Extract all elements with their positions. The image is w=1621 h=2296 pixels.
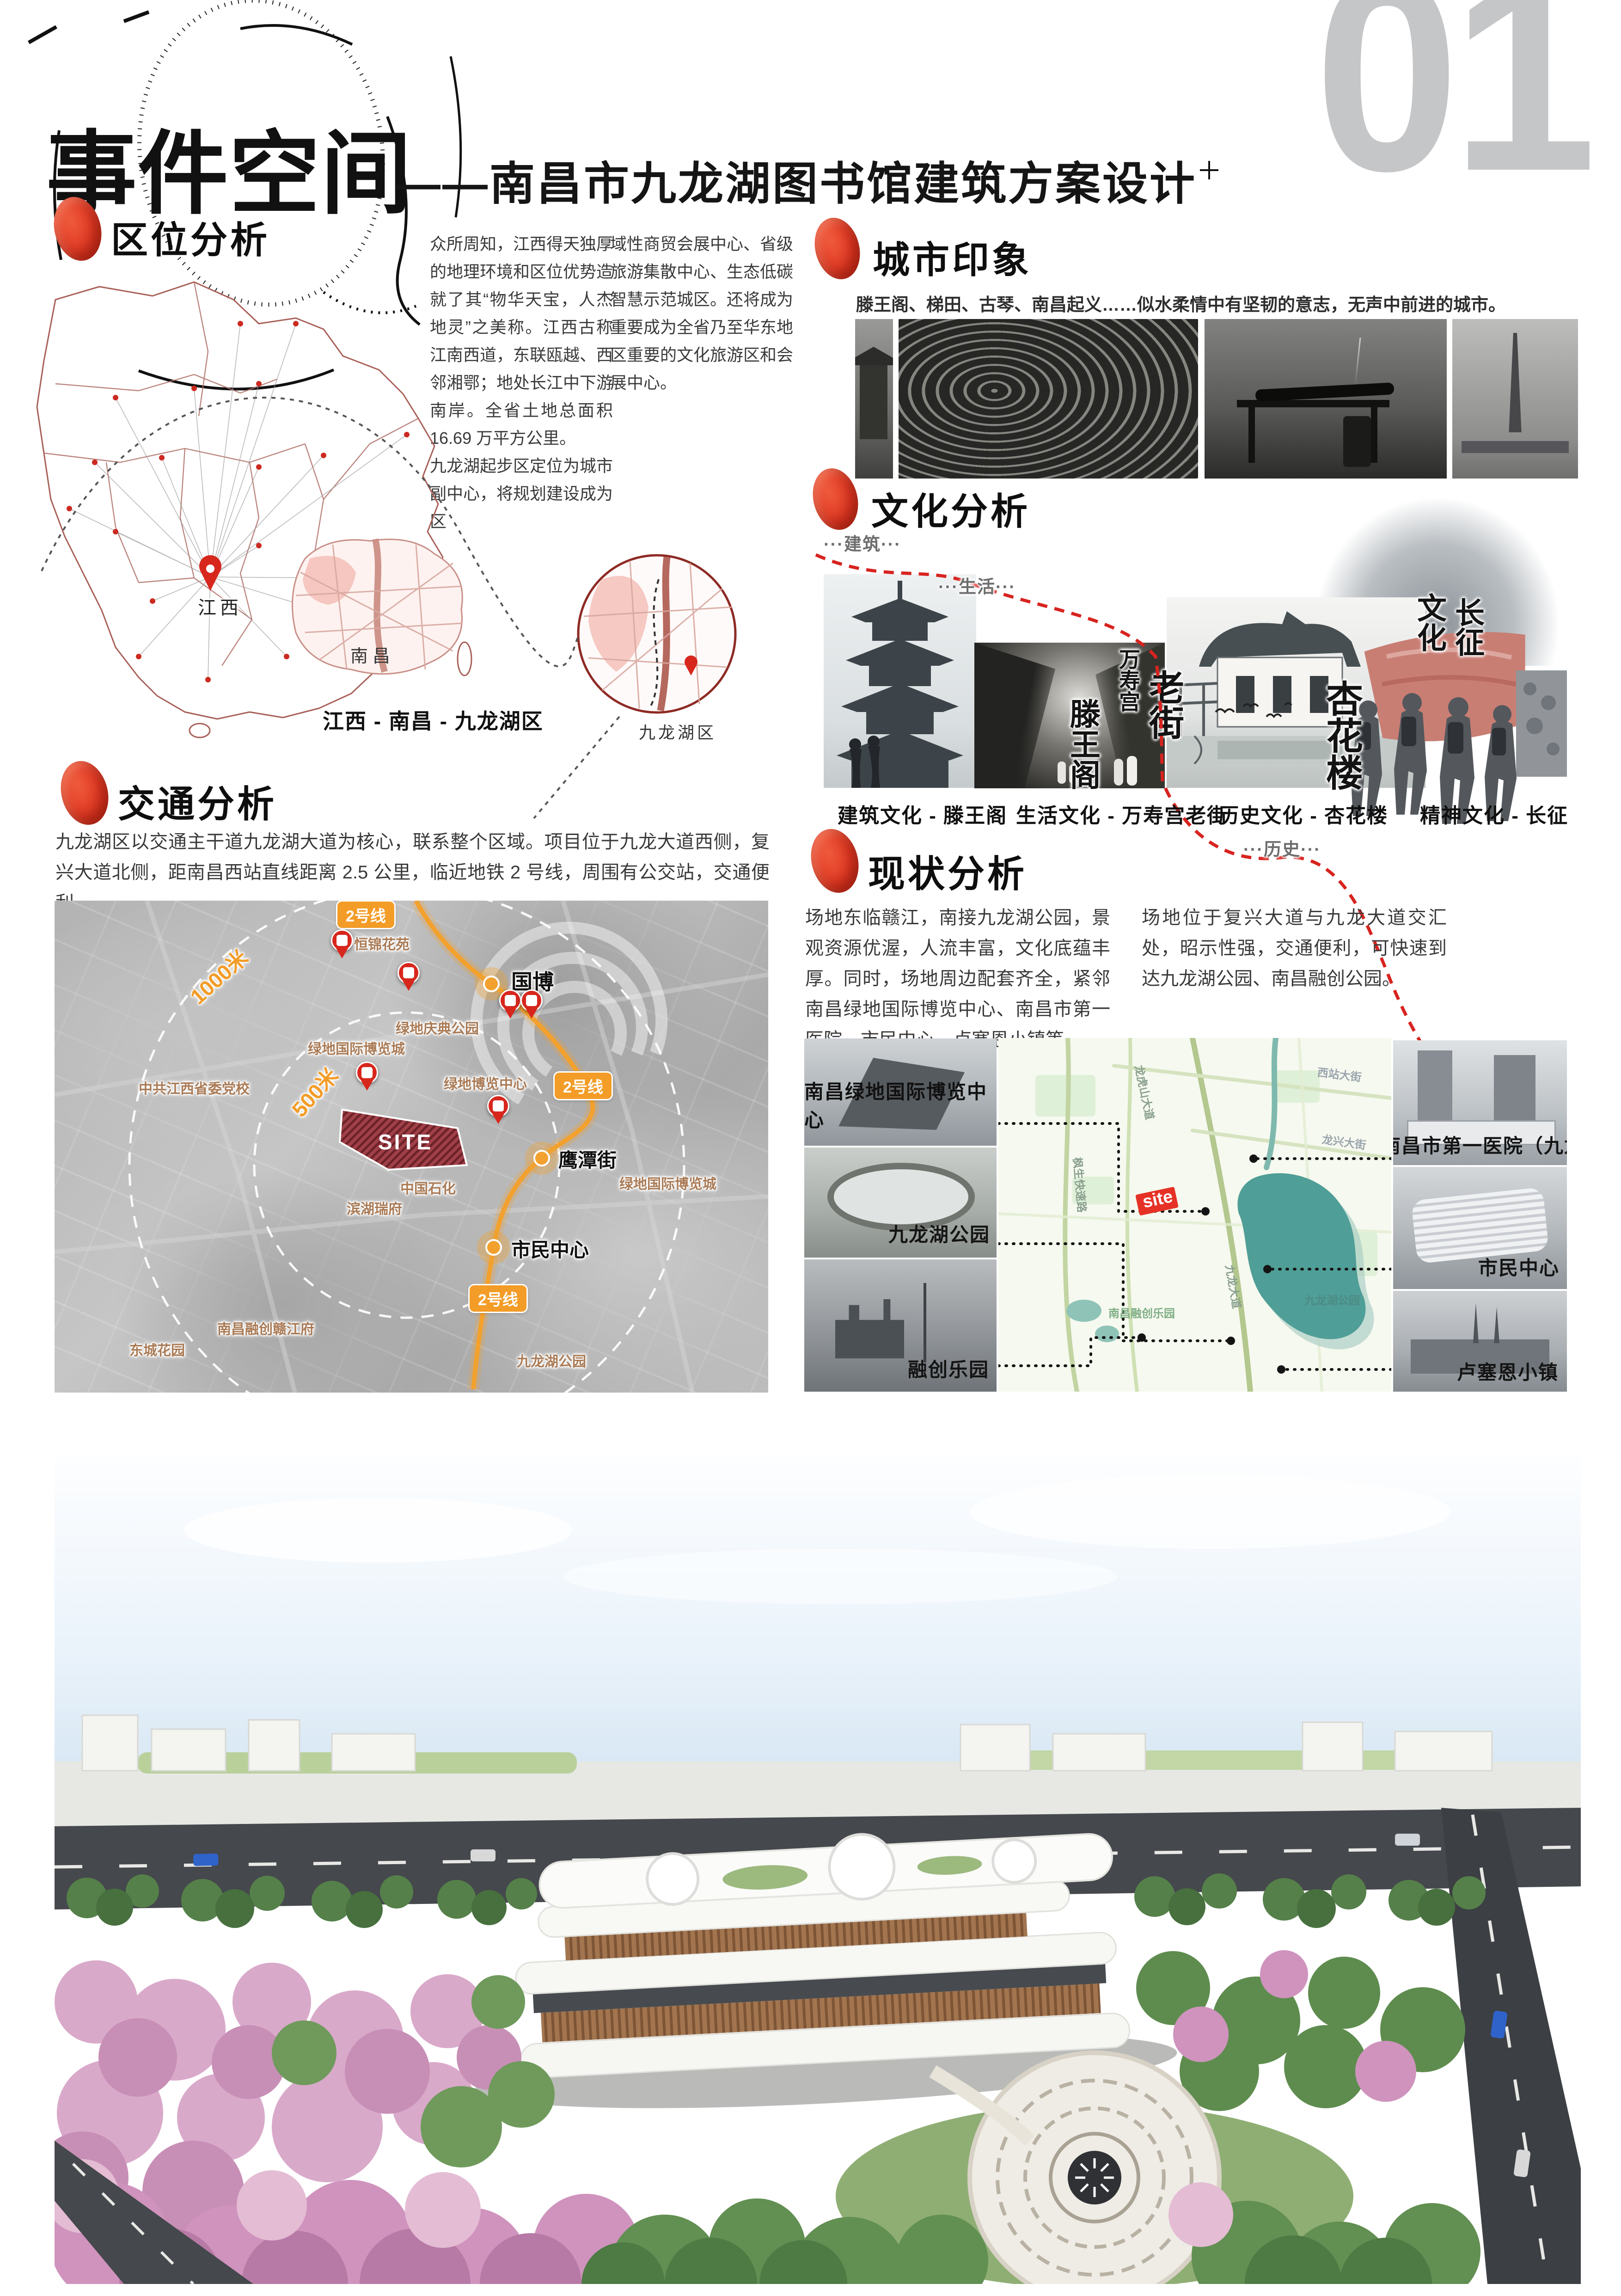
incense-smoke-icon [1355,338,1361,386]
status-photo-caption: 融创乐园 [908,1354,989,1382]
poi-party-school: 中共江西省委党校 [139,1077,250,1098]
bus-stop-pin-icon [499,989,521,1012]
station-label-yingtanjie: 鹰潭街 [558,1145,617,1173]
flow-label-history: ···历史··· [1243,835,1321,860]
impression-photo-monument [1452,319,1578,479]
hospital-tower-icon [1494,1055,1535,1125]
table-leg-icon [1371,407,1377,463]
metro-line2-badge: 2号线 [337,902,394,928]
status-photo-caption: 卢塞恩小镇 [1457,1357,1559,1385]
poi-jiulonghu-park: 九龙湖公园 [517,1350,586,1370]
station-label-shimin: 市民中心 [511,1234,589,1263]
poi-sinopec: 中国石化 [400,1177,456,1197]
status-paragraph-2: 场地位于复兴大道与九龙大道交汇处，昭示性强，交通便利，可快速到达九龙湖公园、南昌… [1142,902,1447,994]
status-photo-caption: 南昌绿地国际博览中心 [804,1076,991,1133]
registration-cross-icon [1200,161,1218,179]
poi-expo-city-east: 绿地国际博览城 [619,1173,716,1193]
status-map-drawing [998,1038,1391,1392]
bus-stop-pin-icon [356,1062,378,1084]
impression-section-dot-icon [808,213,866,284]
culture-caption-life: 生活文化 - 万寿宫老街 [1016,799,1228,829]
status-photo-caption: 市民中心 [1478,1252,1560,1281]
status-photo-lucerne-town: 卢塞恩小镇 [1393,1291,1567,1392]
monument-tower-icon [1507,333,1523,432]
flow-label-life: ···生活··· [938,572,1016,598]
church-spire-icon [1494,1307,1499,1343]
poi-expo-center: 绿地博览中心 [444,1073,527,1093]
impression-section-title: 城市印象 [873,230,1032,284]
status-photo-caption: 南昌市第一医院（九龙湖分院） [1393,1130,1567,1159]
pavilion-roof-icon [855,347,893,365]
church-spire-icon [1473,1303,1479,1343]
theme-park-castle-icon [835,1299,905,1359]
status-paragraph-1: 场地东临赣江，南接九龙湖公园，景观资源优渥，人流丰富，文化底蕴丰厚。同时，场地周… [805,902,1110,1055]
impression-photo-terraces [899,319,1198,479]
poi-hengjin: 恒锦花苑 [354,933,410,953]
culture-caption-spirit: 精神文化 - 长征 [1420,799,1568,829]
culture-caption-architecture: 建筑文化 - 滕王阁 [838,799,1007,829]
bus-stop-pin-icon [398,962,420,984]
guqin-icon [1255,382,1395,402]
bus-stop-pin-icon [520,989,543,1012]
traffic-section-title: 交通分析 [118,774,277,828]
location-section-title: 区位分析 [111,210,270,264]
status-photo-civic-center: 市民中心 [1393,1167,1567,1289]
status-photo-sunac-park: 融创乐园 [804,1259,997,1392]
metro-line2-badge: 2号线 [555,1073,612,1099]
status-photo-hospital: 南昌市第一医院（九龙湖分院） [1393,1040,1567,1165]
traffic-satellite-map: 2号线 2号线 2号线 国博 鹰潭街 市民中心 500米 1000米 SITE … [55,901,768,1393]
poster-board: 事件空间 ——南昌市九龙湖图书馆建筑方案设计 01 区位分析 众所周知，江西得天… [0,0,1621,2296]
render-aerial-view [55,1456,1581,2284]
status-photo-expo-center: 南昌绿地国际博览中心 [804,1038,997,1146]
page-number: 01 [1314,0,1589,213]
hospital-tower-icon [1418,1050,1452,1125]
park-label: 南昌融创乐园 [1108,1304,1175,1320]
page-subtitle: ——南昌市九龙湖图书馆建筑方案设计 [395,147,1197,213]
site-label: SITE [378,1130,433,1154]
bus-stop-pin-icon [331,929,353,952]
status-planning-map: site 枫生快速路 龙虎山大道 九龙大道 西站大街 龙兴大街 九龙湖公园 南昌… [998,1038,1391,1392]
incense-burner-icon [1343,416,1371,467]
table-leg-icon [1248,407,1255,463]
status-section-title: 现状分析 [868,844,1027,898]
poi-qingdian-park: 绿地庆典公园 [396,1017,479,1037]
status-photo-jiulonghu-park: 九龙湖公园 [804,1148,997,1258]
pavilion-body-icon [860,365,887,439]
flow-label-architecture: ···建筑··· [824,530,901,555]
render-illustration [55,1456,1581,2284]
park-label: 九龙湖公园 [1304,1291,1360,1308]
poi-binhu: 滨湖瑞府 [347,1197,402,1218]
metro-line2-badge: 2号线 [470,1285,526,1312]
impression-photo-pavilion [855,319,893,479]
tower-spike-icon [924,1283,926,1363]
culture-caption-history: 历史文化 - 杏花楼 [1218,799,1388,829]
monument-base-icon [1462,441,1569,453]
impression-photo-guqin [1205,319,1447,479]
poi-ganjiangfu: 南昌融创赣江府 [217,1318,314,1338]
status-photo-caption: 九龙湖公园 [888,1219,990,1247]
poi-dongcheng: 东城花园 [129,1339,185,1359]
impression-description: 滕王阁、梯田、古琴、南昌起义……似水柔情中有坚韧的意志，无声中前进的城市。 [856,290,1559,316]
bus-stop-pin-icon [487,1095,509,1117]
poi-expo-city-west: 绿地国际博览城 [308,1037,405,1058]
